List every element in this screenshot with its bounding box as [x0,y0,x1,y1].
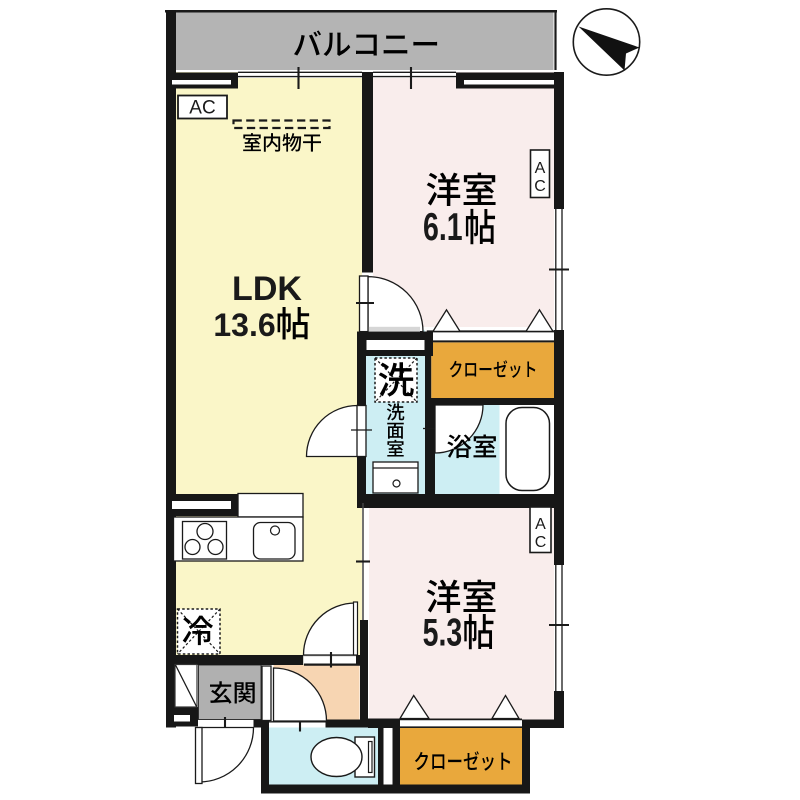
svg-text:5.3: 5.3 [423,611,463,654]
svg-text:A: A [535,160,546,177]
svg-text:A: A [535,516,546,533]
svg-text:LDK: LDK [232,270,302,308]
svg-text:AC: AC [189,98,215,119]
svg-text:C: C [535,534,547,551]
svg-text:13.6: 13.6 [213,307,275,343]
svg-text:6.1: 6.1 [423,206,463,249]
svg-text:C: C [534,178,546,195]
